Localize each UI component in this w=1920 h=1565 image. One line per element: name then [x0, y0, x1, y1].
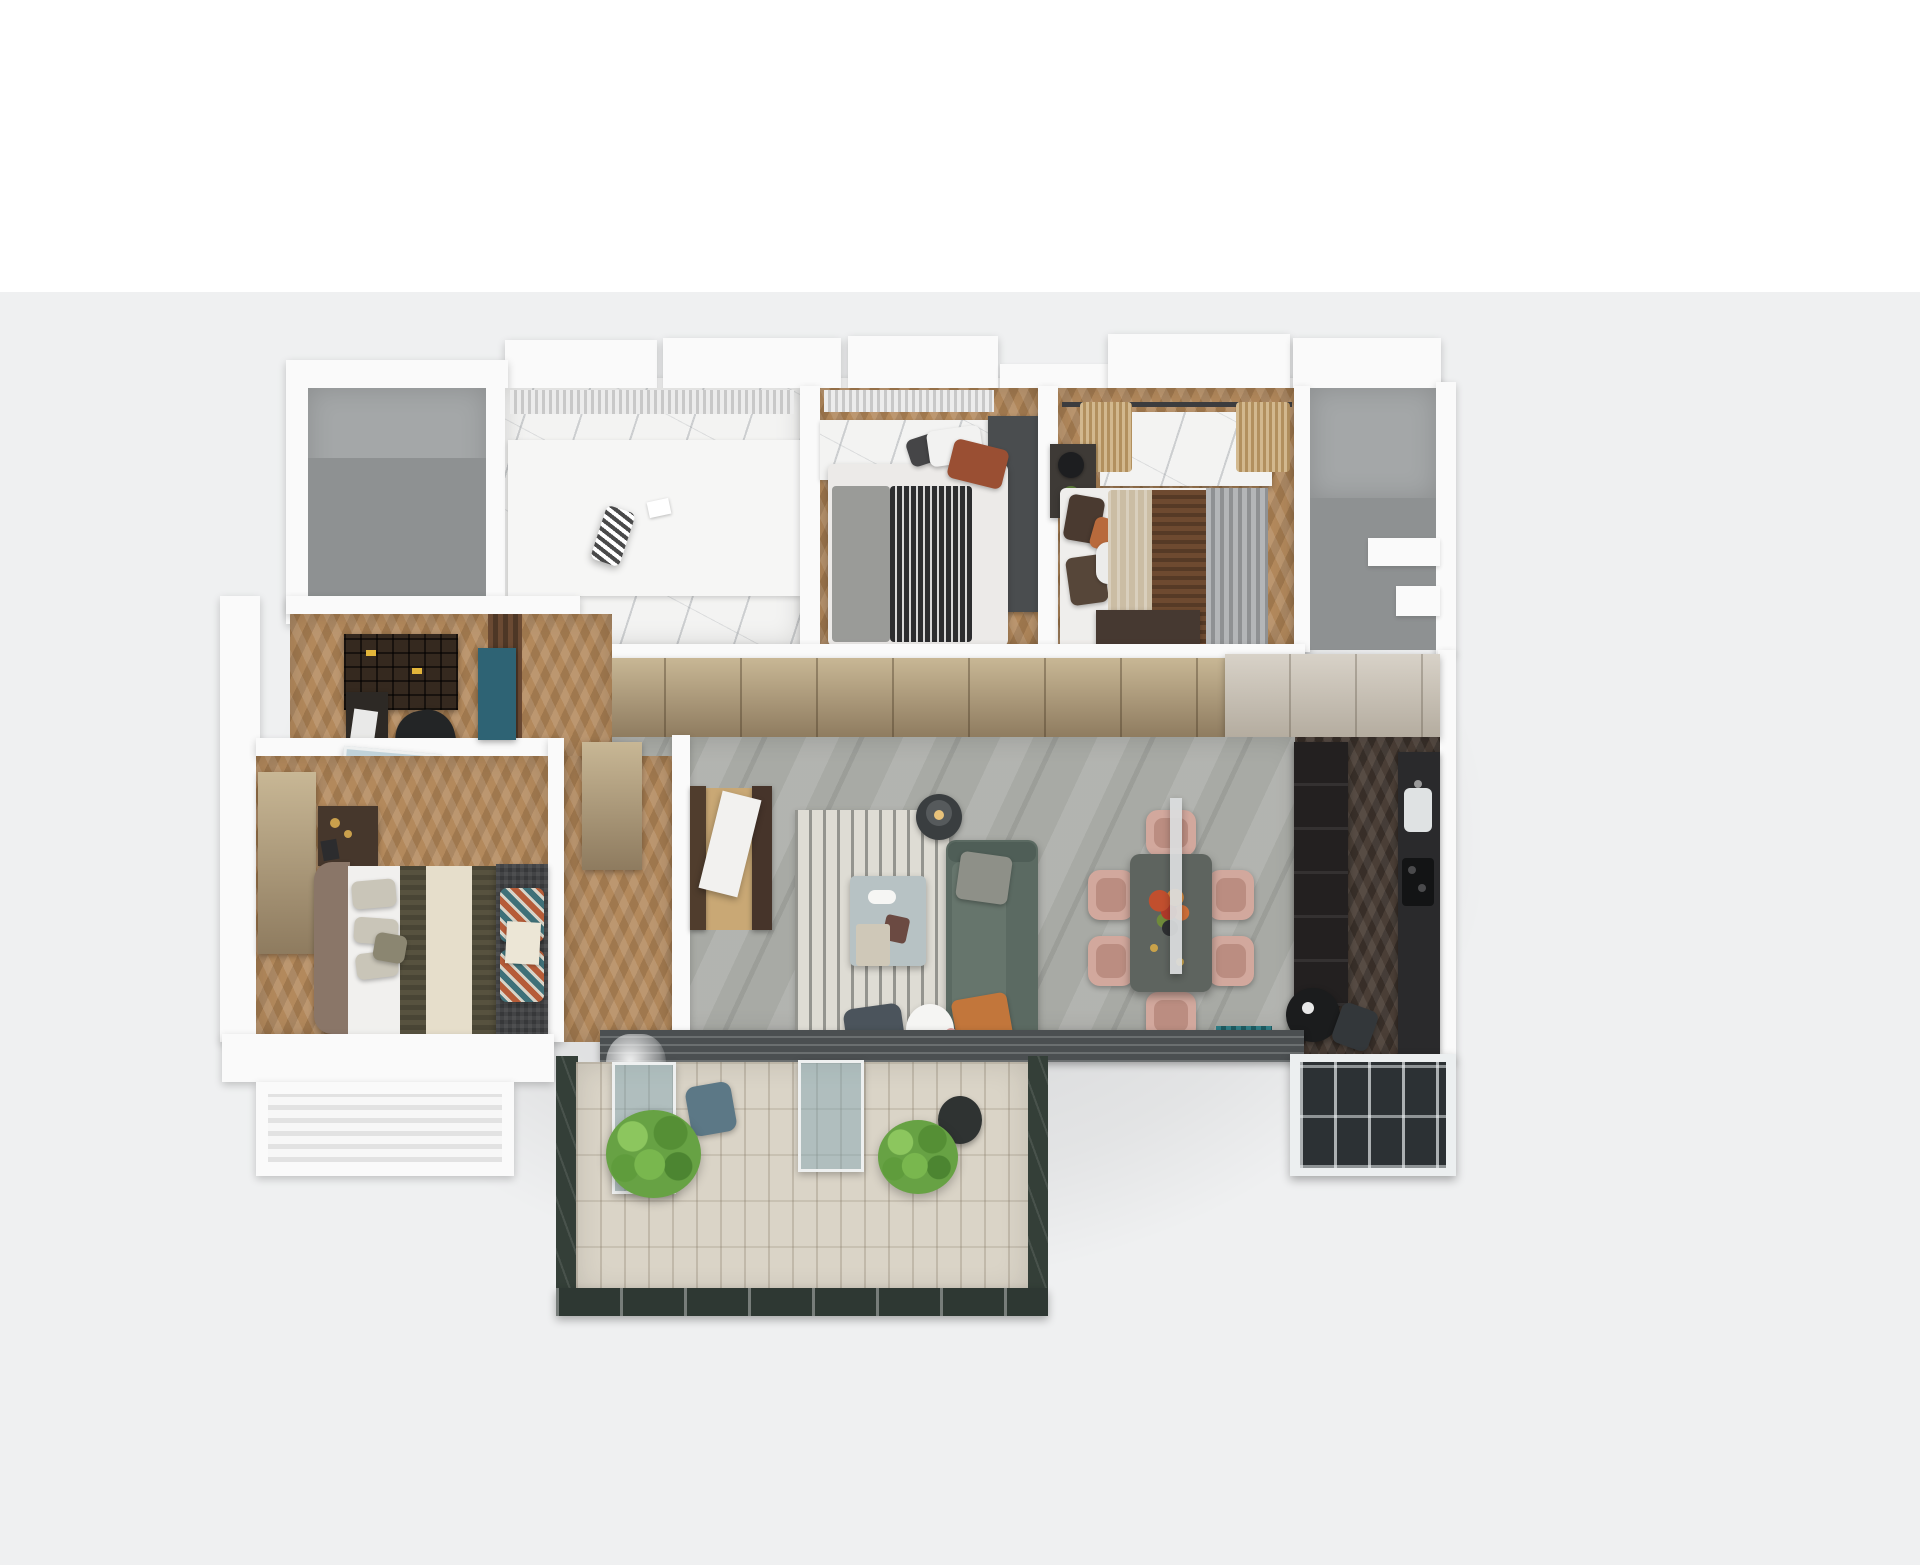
wall-kitchen-east	[1438, 650, 1456, 1062]
balcony-glass-pane-2	[798, 1060, 864, 1172]
kitchen-faucet	[1414, 780, 1422, 788]
entry-door-frame-left	[690, 786, 706, 930]
kitchen-cooktop	[1402, 858, 1434, 906]
coffee-table-mat	[856, 924, 890, 966]
entry-wall	[672, 735, 690, 1035]
dining-chair-east-1	[1208, 870, 1254, 920]
roof-slab-5	[1108, 334, 1290, 394]
nightstand-photo-frame	[320, 839, 339, 861]
yellow-book-1	[366, 650, 376, 656]
wall-bedrooms-divider	[1038, 386, 1058, 652]
balcony-edge-left	[556, 1056, 578, 1306]
balcony-edge-right	[1028, 1056, 1048, 1294]
nightstand-gold-decor-1	[330, 818, 340, 828]
wall-master-south	[222, 1034, 554, 1082]
roof-slab-3	[848, 336, 998, 394]
master-cream-runner	[426, 866, 472, 1040]
balcony-glass-rail	[556, 1288, 1048, 1316]
nightstand-gold-decor-2	[344, 830, 352, 838]
sofa-pillow-gray	[955, 851, 1013, 906]
bathroom-vanity-counter	[508, 440, 800, 596]
guest-floor-curtain	[1206, 488, 1268, 656]
master-wardrobe	[258, 772, 316, 954]
wall-study-north	[286, 596, 580, 614]
wall-left-outer	[220, 596, 260, 1042]
balcony-plant-right	[878, 1120, 958, 1194]
master-pillow-accent	[372, 931, 408, 964]
bedroom-small-gray-blanket	[832, 486, 890, 642]
linear-pendant-light	[1170, 798, 1182, 974]
tassel-curtain-right	[1236, 402, 1290, 472]
bistro-decor	[1302, 1002, 1314, 1014]
master-pillow-1	[351, 878, 397, 910]
teal-cabinet	[478, 648, 516, 740]
bedroom-small-blinds	[824, 390, 994, 412]
cooktop-burner-1	[1408, 866, 1416, 874]
dining-chair-east-2	[1208, 936, 1254, 986]
void-room-floor-shade	[308, 458, 486, 602]
wall-master-hall	[548, 738, 564, 1042]
yellow-book-2	[412, 668, 422, 674]
roof-slab-6	[1293, 338, 1441, 394]
wall-bath-bedroom	[800, 386, 820, 652]
bathroom-window-blinds	[510, 390, 794, 414]
kitchen-upper-cabinets	[1225, 654, 1440, 738]
hall-wardrobe-run	[590, 658, 1226, 738]
bench-art-tray	[505, 921, 541, 965]
master-window-lines	[268, 1094, 502, 1162]
master-headboard	[314, 862, 350, 1034]
bay-window-glass	[1300, 1062, 1446, 1168]
roof-slab-1	[505, 340, 657, 394]
wall-guest-core	[1294, 386, 1310, 652]
coffee-table-squiggle-decor	[868, 890, 896, 904]
table-gold-cup-1	[1150, 944, 1158, 952]
window-track-band	[600, 1030, 1304, 1062]
bedroom-small-striped-duvet	[890, 486, 972, 642]
cooktop-burner-2	[1418, 884, 1426, 892]
kitchen-sink	[1404, 788, 1432, 832]
floor-lamp-glow	[934, 810, 944, 820]
balcony-plant-left	[606, 1110, 701, 1198]
core-floor-dark	[1310, 498, 1436, 650]
dining-chair-west-2	[1088, 936, 1134, 986]
dining-chair-west-1	[1088, 870, 1134, 920]
shoe-cabinet	[582, 742, 642, 870]
kitchen-tall-cabinets	[1294, 742, 1348, 1006]
core-step-1	[1368, 538, 1440, 566]
core-floor-light	[1310, 388, 1436, 498]
floorplan-scene	[0, 0, 1920, 1565]
guest-lamp	[1058, 452, 1084, 478]
core-step-2	[1396, 586, 1440, 616]
